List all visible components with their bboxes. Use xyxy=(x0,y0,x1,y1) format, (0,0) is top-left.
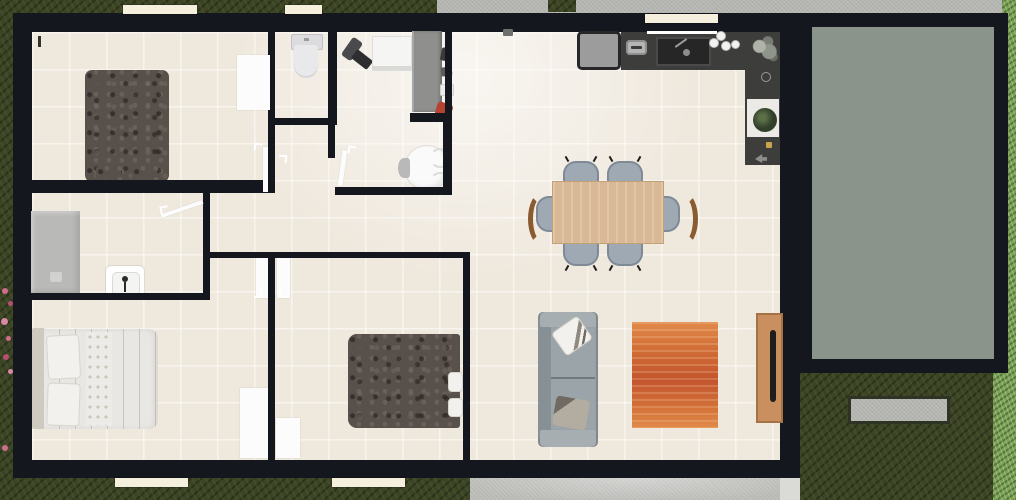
toilet-button xyxy=(304,38,309,41)
toaster-slot xyxy=(631,46,642,49)
wall-wc-right xyxy=(328,32,337,125)
wall-hall-bottom xyxy=(208,252,467,258)
wall-laundry-right xyxy=(445,32,452,122)
door-hinge-mark xyxy=(159,205,168,214)
concrete-path-bottom xyxy=(470,478,800,500)
door-hinge-mark xyxy=(279,155,288,164)
window-top-bedroom1[interactable] xyxy=(123,5,197,14)
shower-tray[interactable] xyxy=(31,211,80,295)
shower-drain xyxy=(50,272,62,282)
dining-chair-top-1[interactable] xyxy=(563,161,599,184)
wall-ensuite-bottom xyxy=(13,293,210,300)
corner-plant[interactable] xyxy=(751,36,779,62)
window-top-kitchen[interactable] xyxy=(645,14,718,23)
grass-patch-top xyxy=(548,0,576,12)
dark-bed-pillow-2 xyxy=(448,398,463,417)
door-leaf-bedroom2-south[interactable] xyxy=(240,388,268,458)
faucet-base xyxy=(683,49,690,56)
wall-laundry-bottom xyxy=(410,113,452,122)
flower-dot xyxy=(2,288,8,294)
bed-dotted-runner xyxy=(86,332,112,426)
toilet-bowl[interactable] xyxy=(294,45,318,78)
wall-decor-small xyxy=(503,29,513,36)
door-leaf-wc[interactable] xyxy=(263,147,268,192)
wall-wc-bottom xyxy=(268,118,337,125)
fridge[interactable] xyxy=(577,31,621,70)
wall-bedroom2-3-divider xyxy=(268,258,275,460)
floor-plan-scene xyxy=(0,0,1016,500)
door-hinge-mark xyxy=(347,145,356,154)
door-leaf-bedroom1[interactable] xyxy=(237,55,270,110)
window-top-wc[interactable] xyxy=(285,5,322,14)
counter-ring xyxy=(761,72,771,82)
flower-dot xyxy=(2,445,8,451)
washing-machine[interactable] xyxy=(372,36,412,71)
wall-bedroom3-right xyxy=(463,252,470,460)
wall-roundroom-left xyxy=(328,125,335,158)
stone-step xyxy=(848,396,950,424)
counter-item-small xyxy=(766,142,772,148)
double-bed-dark-bottom[interactable] xyxy=(348,334,460,428)
dark-bed-pillow-1 xyxy=(448,372,463,392)
door-hinge-mark xyxy=(279,290,287,298)
deck-surface xyxy=(812,27,994,359)
window-bottom-bedroom3[interactable] xyxy=(332,478,405,487)
tv-screen[interactable] xyxy=(770,330,776,402)
board-plant[interactable] xyxy=(753,108,777,132)
sofa-armrest-bottom xyxy=(540,430,596,447)
hob-knob xyxy=(709,38,719,48)
door-hinge-mark xyxy=(253,142,262,151)
round-table-chair-left[interactable] xyxy=(398,158,410,178)
wall-ensuite-right xyxy=(203,193,210,300)
bed-pillow-1 xyxy=(46,334,81,380)
wall-roundroom-bottom xyxy=(335,187,452,195)
basin-faucet-stem xyxy=(124,282,126,292)
concrete-path-top xyxy=(437,0,1002,14)
kitchen-shelf-line xyxy=(647,31,717,34)
flower-dot xyxy=(1,318,8,325)
chair-arm-left xyxy=(528,193,554,245)
wall-bedroom1-bottom xyxy=(13,180,275,193)
hob-knob xyxy=(731,40,740,49)
rug-weave-texture xyxy=(632,322,718,428)
door-leaf-bedroom3-south[interactable] xyxy=(276,418,300,458)
hob-knob xyxy=(721,41,731,51)
chair-arm-right xyxy=(672,193,698,245)
flower-dot xyxy=(6,336,11,341)
wall-roundroom-right xyxy=(443,122,452,195)
dining-chair-bottom-2[interactable] xyxy=(607,241,643,266)
sofa-pillow-gray xyxy=(552,395,591,430)
dining-chair-bottom-1[interactable] xyxy=(563,241,599,266)
dining-chair-top-2[interactable] xyxy=(607,161,643,184)
path-bottom-corner xyxy=(780,478,800,500)
sofa-backrest xyxy=(538,318,551,440)
door-hinge-mark xyxy=(254,290,262,298)
wardrobe[interactable] xyxy=(412,31,442,112)
window-bottom-bedroom2[interactable] xyxy=(115,478,188,487)
dining-table[interactable] xyxy=(553,182,663,243)
bed-pillow-2 xyxy=(46,382,80,426)
light-switch-mark xyxy=(38,36,41,47)
flower-dot xyxy=(3,354,9,360)
